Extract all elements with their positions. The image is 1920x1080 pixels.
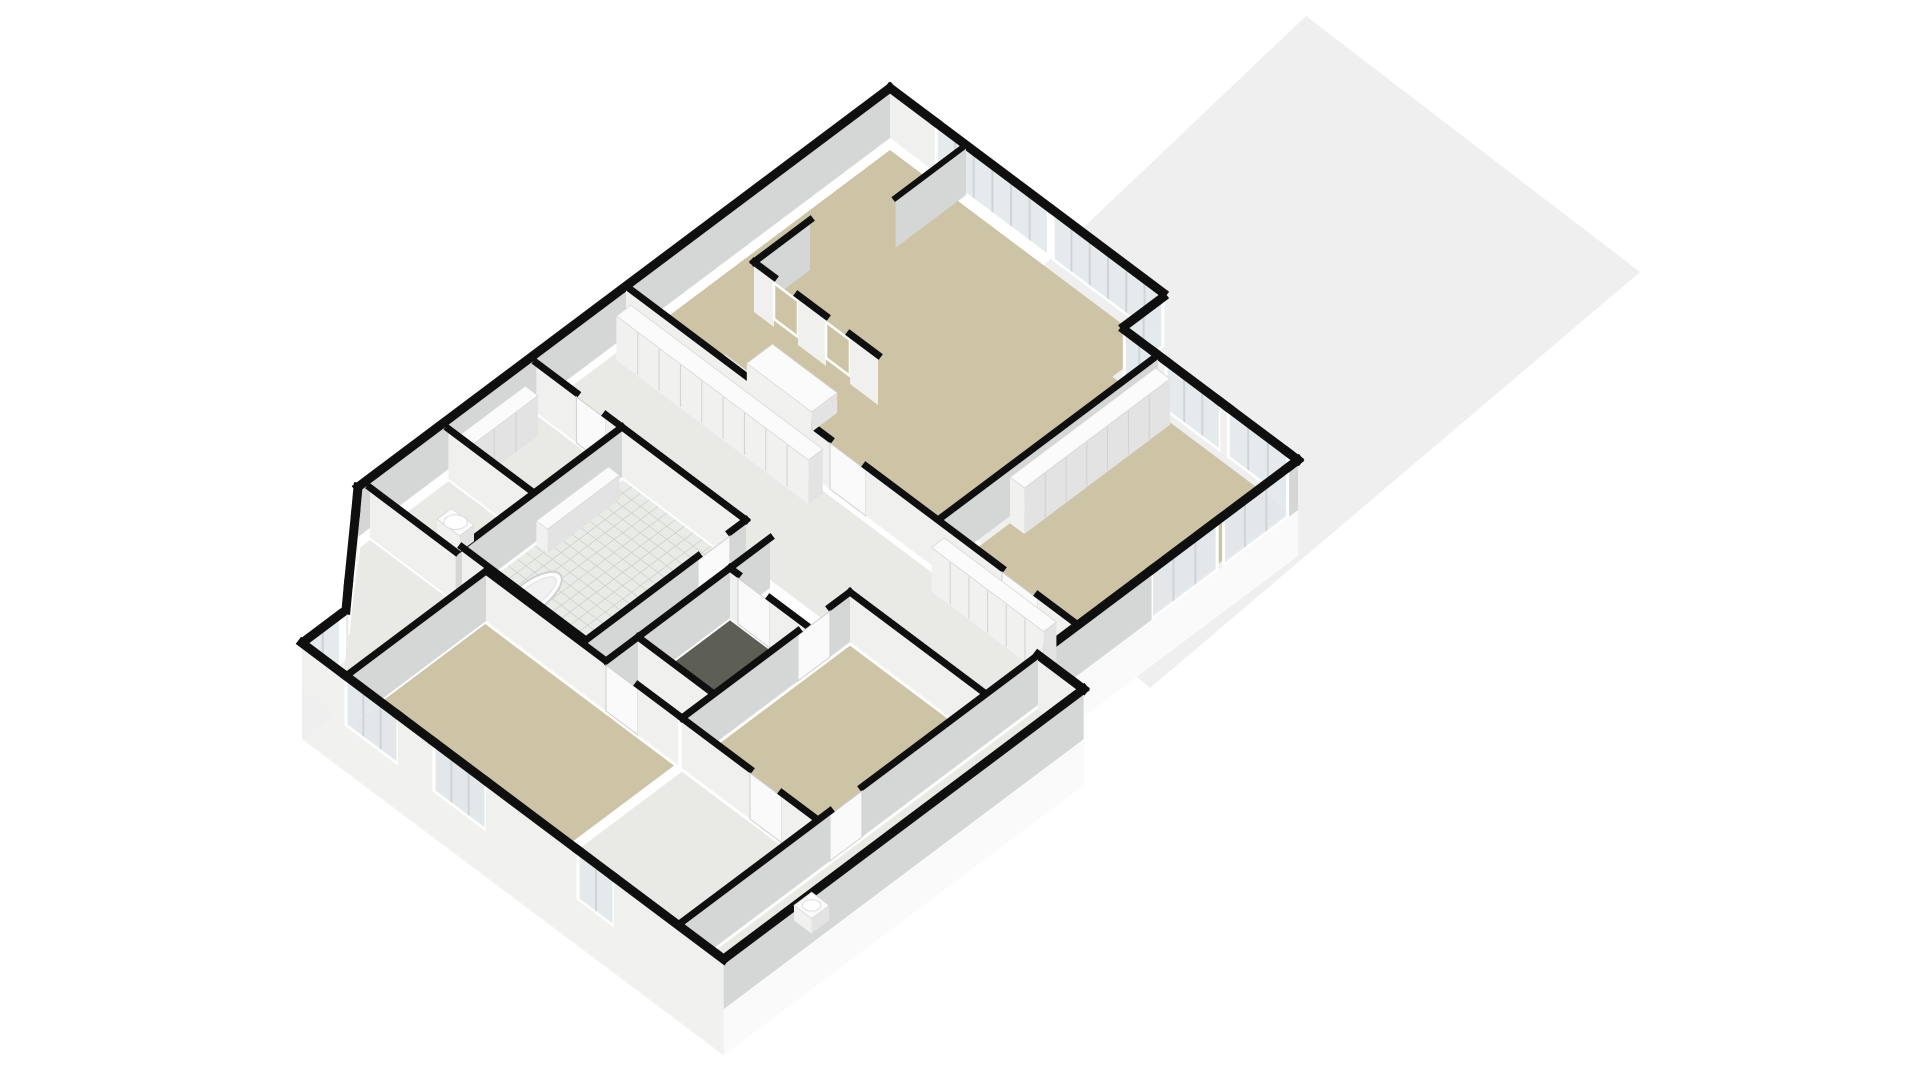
wall-bevel-solid-b-cap [346,584,348,610]
toilet-wc-lid [444,515,468,530]
floorplan-3d-render [0,0,1920,1080]
toilet-small-bath-lid [802,900,820,911]
floorplan-svg [0,0,1920,1080]
